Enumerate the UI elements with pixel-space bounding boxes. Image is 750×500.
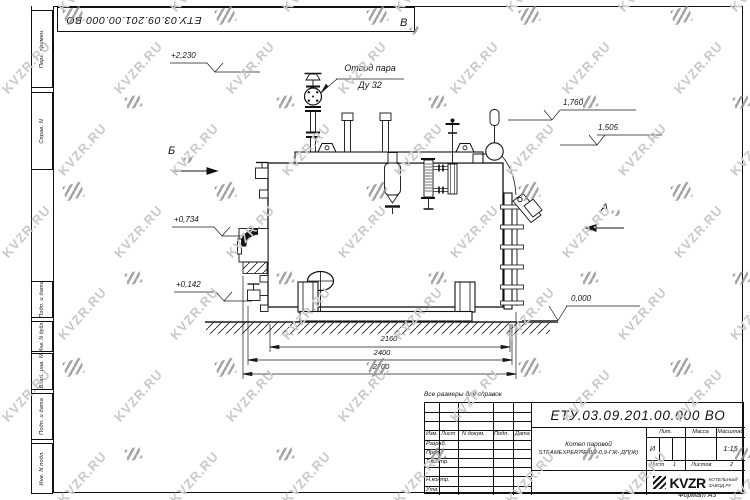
tb-header-data: Дата: [515, 432, 530, 438]
tb-scale-value: 1:15: [716, 445, 745, 453]
tb-scale-label: Масштаб: [716, 430, 745, 436]
elevation-label-0734: +0,734: [174, 216, 199, 224]
reference-note: Все размеры для справок: [424, 392, 502, 399]
side-column-vzam-inv: Взам. инв. N: [31, 353, 53, 390]
elevation-label-0000: 0,000: [571, 295, 591, 303]
tb-row-nkontr: Н.контр.: [426, 478, 450, 484]
tb-header-podp: Подп.: [494, 432, 509, 438]
tb-header-ndokum: N докум.: [462, 432, 485, 438]
side-column-inv-podl: Инв. N подл.: [31, 443, 53, 494]
kvzr-logo-icon: [653, 476, 666, 489]
tb-sheet-value: 1: [673, 463, 676, 469]
view-label-v: В: [400, 18, 407, 29]
tb-sheet-label: Лист: [650, 463, 664, 469]
tb-row-prov: Пров.: [426, 451, 441, 457]
tb-sheets-value: 2: [730, 463, 733, 469]
tb-mass-label: Масса: [685, 430, 716, 436]
tb-row-razrab: Разраб.: [426, 442, 446, 448]
elevation-label-1505: 1,505: [598, 124, 618, 132]
elevation-label-1760: 1,760: [563, 99, 583, 107]
elevation-label-2230: +2,230: [171, 52, 196, 60]
tb-lit-value: И: [646, 445, 659, 453]
dimension-label-2700: 2700: [351, 363, 411, 371]
steam-outlet-note-line2: Ду 32: [333, 81, 407, 90]
title-block: Изм. Лист N докум. Подп. Дата Разраб. Пр…: [424, 402, 744, 494]
side-column-perv-primen: Перв. примен.: [31, 10, 53, 88]
tb-header-izm: Изм.: [426, 432, 438, 438]
doc-number-flipped: ЕТУ.03.09.201.00.000 ВО: [58, 14, 414, 26]
tb-sheets-label: Листов: [691, 463, 711, 469]
steam-outlet-note-line1: Отвод пара: [333, 64, 407, 73]
company-subtitle: КОТЕЛЬНЫЙ ЗАВОД.РУ: [709, 477, 738, 488]
side-column-inv-dubl: Инв. N дубл.: [31, 321, 53, 352]
elevation-label-0142: +0,142: [176, 281, 201, 289]
dimension-label-2400: 2400: [352, 349, 412, 357]
tb-doc-number: ЕТУ.03.09.201.00.000 ВО: [531, 403, 745, 427]
tb-product-name: Котел паровой STEAMEXPERT-Е-0,2-0,9-ГЖ- …: [531, 427, 646, 470]
dimension-label-2160: 2160: [359, 335, 419, 343]
company-name: KVZR: [669, 475, 705, 491]
tb-lit-label: Лит.: [646, 430, 685, 436]
company-logo: KVZR КОТЕЛЬНЫЙ ЗАВОД.РУ: [646, 470, 745, 495]
view-label-a: А: [601, 203, 608, 214]
side-column-podp-data-1: Подп. и дата: [31, 281, 53, 318]
tb-header-list: Лист: [441, 432, 455, 438]
view-label-b: Б: [168, 146, 175, 157]
drawing-sheet: ЕТУ.03.09.201.00.000 ВО Перв. примен. Сп…: [0, 0, 750, 500]
tb-row-tkontr: Т.контр.: [426, 460, 449, 466]
side-column-sprav-n: Справ. N: [31, 92, 53, 170]
side-column-podp-data-2: Подп. и дата: [31, 393, 53, 440]
doc-number-flipped-box: ЕТУ.03.09.201.00.000 ВО: [57, 7, 415, 32]
tb-row-utv: Утв.: [426, 488, 439, 494]
